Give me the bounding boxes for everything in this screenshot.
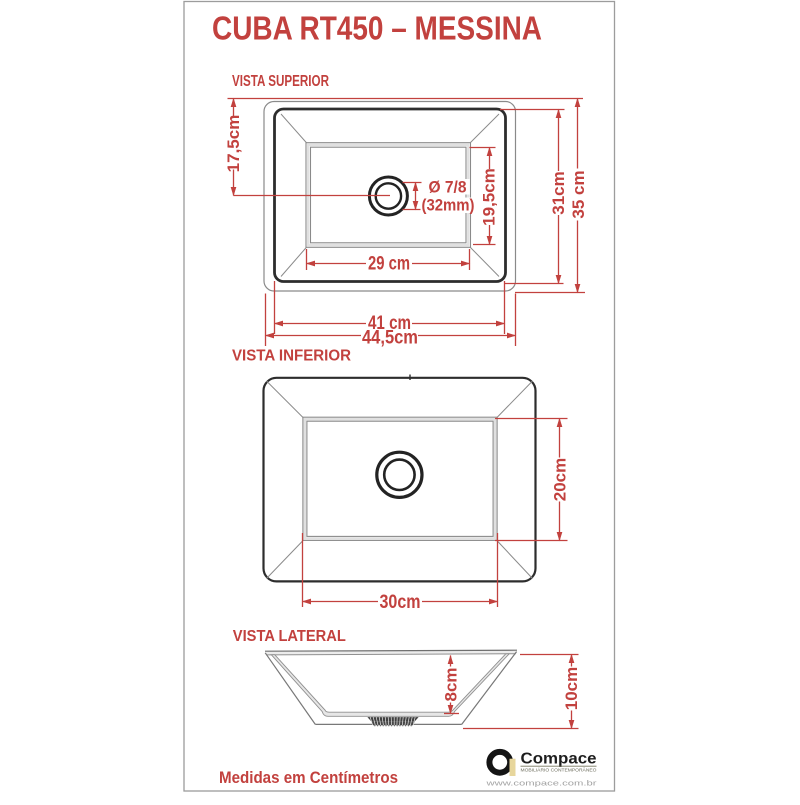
svg-text:VISTA LATERAL: VISTA LATERAL: [233, 628, 346, 645]
svg-text:44,5cm: 44,5cm: [362, 328, 418, 349]
svg-text:(32mm): (32mm): [422, 196, 475, 215]
svg-text:30cm: 30cm: [380, 592, 421, 613]
svg-text:Ø 7/8: Ø 7/8: [429, 178, 467, 197]
svg-text:20cm: 20cm: [550, 458, 569, 501]
svg-text:29 cm: 29 cm: [368, 254, 410, 275]
svg-text:10cm: 10cm: [562, 667, 581, 710]
svg-text:17,5cm: 17,5cm: [224, 115, 243, 173]
svg-text:CUBA RT450 – MESSINA: CUBA RT450 – MESSINA: [212, 10, 542, 47]
svg-text:MOBILIÁRIO CONTEMPORÂNEO: MOBILIÁRIO CONTEMPORÂNEO: [521, 767, 597, 773]
svg-text:Compace: Compace: [521, 750, 597, 767]
svg-text:35 cm: 35 cm: [569, 170, 588, 218]
svg-text:8cm: 8cm: [442, 667, 461, 701]
svg-text:19,5cm: 19,5cm: [479, 168, 498, 226]
svg-text:VISTA INFERIOR: VISTA INFERIOR: [232, 348, 351, 365]
svg-text:Medidas em Centímetros: Medidas em Centímetros: [219, 768, 398, 787]
svg-text:31cm: 31cm: [549, 171, 568, 214]
svg-text:VISTA SUPERIOR: VISTA SUPERIOR: [232, 73, 329, 90]
svg-text:www.compace.com.br: www.compace.com.br: [485, 779, 597, 788]
